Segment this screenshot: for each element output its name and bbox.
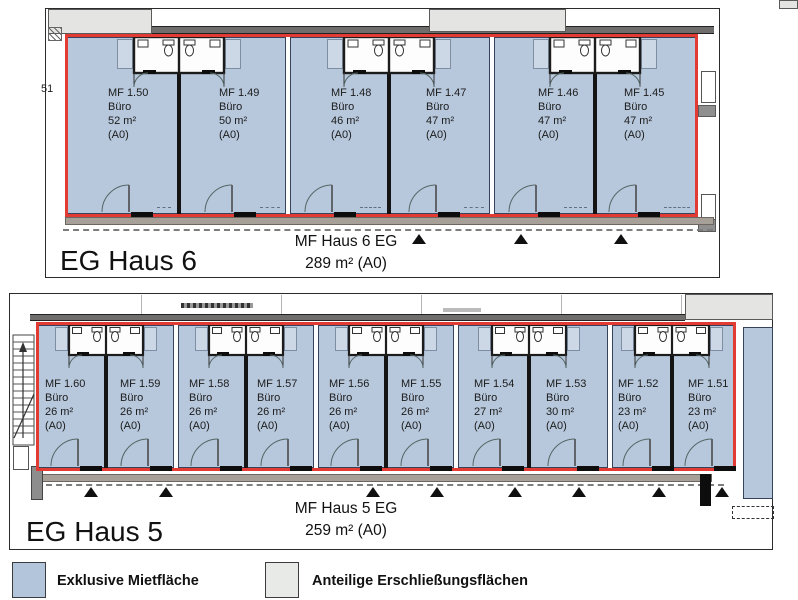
door-swing-icon <box>684 438 714 468</box>
unit-id: MF 1.46 <box>538 86 578 100</box>
unit-label: MF 1.55Büro26 m²(A0) <box>401 377 441 433</box>
unit-label: MF 1.45Büro47 m²(A0) <box>624 86 664 142</box>
door-swing-icon <box>204 184 234 214</box>
bathroom-pod-icon <box>196 324 296 370</box>
unit-area: 50 m² <box>219 114 259 128</box>
exclusive-area-swatch <box>12 562 46 598</box>
floor-dash-line <box>157 207 171 208</box>
door-swing-icon <box>120 438 150 468</box>
door-swing-icon <box>50 438 80 468</box>
unit-zone: (A0) <box>538 128 578 142</box>
staircase-icon <box>12 334 36 446</box>
dashed-outline <box>732 506 774 519</box>
double-wall <box>489 37 495 214</box>
walkway-strip <box>36 474 712 482</box>
bathroom-pod-icon <box>622 324 722 370</box>
door-swing-icon <box>408 184 438 214</box>
grid-line <box>561 295 562 314</box>
door-threshold <box>430 466 452 471</box>
summary-line2: 289 m² (A0) <box>226 253 466 275</box>
door-threshold <box>234 212 256 217</box>
door-threshold <box>502 466 524 471</box>
unit-area: 52 m² <box>108 114 148 128</box>
floor-dash-line <box>464 207 484 208</box>
unit-type: Büro <box>426 100 466 114</box>
roof-block <box>685 294 773 320</box>
unit-label: MF 1.59Büro26 m²(A0) <box>120 377 160 433</box>
haus5-title: EG Haus 5 <box>26 516 163 548</box>
door-swing-icon <box>400 438 430 468</box>
unit-label: MF 1.52Büro23 m²(A0) <box>618 377 658 433</box>
unit-area: 47 m² <box>624 114 664 128</box>
door-threshold <box>131 212 153 217</box>
door-threshold <box>538 212 560 217</box>
door-threshold <box>438 212 460 217</box>
door-swing-icon <box>260 438 290 468</box>
unit-label: MF 1.47Büro47 m²(A0) <box>426 86 466 142</box>
unit-type: Büro <box>331 100 371 114</box>
unit-zone: (A0) <box>331 128 371 142</box>
unit-area: 23 m² <box>688 405 728 419</box>
unit-label: MF 1.60Büro26 m²(A0) <box>45 377 85 433</box>
unit-id: MF 1.50 <box>108 86 148 100</box>
entrance-marker <box>514 234 528 244</box>
floor-dash-line <box>664 207 690 208</box>
haus6-plan-panel: MF Haus 6 EG 289 m² (A0) EG Haus 6 51 MF… <box>45 8 720 278</box>
unit-area: 26 m² <box>329 405 369 419</box>
door-threshold <box>652 466 674 471</box>
adjacent-room <box>743 327 773 499</box>
door-threshold <box>714 466 736 471</box>
unit-id: MF 1.49 <box>219 86 259 100</box>
door-threshold <box>638 212 660 217</box>
grid-line <box>281 295 282 314</box>
side-door <box>13 446 29 470</box>
unit-zone: (A0) <box>624 128 664 142</box>
unit-area: 26 m² <box>45 405 85 419</box>
door-swing-icon <box>190 438 220 468</box>
unit-zone: (A0) <box>189 419 229 433</box>
adjacent-unit-label: 51 <box>41 83 53 95</box>
door-swing-icon <box>622 438 652 468</box>
door-swing-icon <box>508 184 538 214</box>
unit-zone: (A0) <box>401 419 441 433</box>
bathroom-pod-icon <box>119 36 239 90</box>
unit-area: 26 m² <box>257 405 297 419</box>
roof-block <box>429 9 566 32</box>
bathroom-pod-icon <box>336 324 436 370</box>
unit-area: 47 m² <box>538 114 578 128</box>
unit-id: MF 1.47 <box>426 86 466 100</box>
grid-line <box>141 295 142 314</box>
roof-hatch-strip <box>443 308 481 312</box>
unit-type: Büro <box>257 391 297 405</box>
entrance-marker <box>508 487 522 497</box>
unit-id: MF 1.59 <box>120 377 160 391</box>
roof-block <box>48 9 152 34</box>
double-wall <box>453 325 459 468</box>
unit-zone: (A0) <box>120 419 160 433</box>
unit-area: 46 m² <box>331 114 371 128</box>
unit-zone: (A0) <box>45 419 85 433</box>
unit-id: MF 1.54 <box>474 377 514 391</box>
floor-dash-line <box>564 207 587 208</box>
unit-type: Büro <box>474 391 514 405</box>
entrance-marker <box>366 487 380 497</box>
floor-dash-line <box>260 207 280 208</box>
unit-id: MF 1.60 <box>45 377 85 391</box>
unit-zone: (A0) <box>474 419 514 433</box>
unit-area: 47 m² <box>426 114 466 128</box>
unit-zone: (A0) <box>329 419 369 433</box>
unit-label: MF 1.51Büro23 m²(A0) <box>688 377 728 433</box>
bathroom-pod-icon <box>479 324 579 370</box>
hatch-square <box>48 27 62 41</box>
double-wall <box>607 325 613 468</box>
unit-zone: (A0) <box>688 419 728 433</box>
unit-type: Büro <box>108 100 148 114</box>
exterior-niche <box>701 71 716 103</box>
wall-segment <box>700 474 711 506</box>
entrance-marker <box>715 487 729 497</box>
double-wall <box>285 37 291 214</box>
unit-area: 23 m² <box>618 405 658 419</box>
unit-zone: (A0) <box>546 419 586 433</box>
facade-band <box>30 314 685 321</box>
door-threshold <box>150 466 172 471</box>
roof-hatch-strip <box>181 303 253 308</box>
unit-zone: (A0) <box>257 419 297 433</box>
unit-area: 26 m² <box>120 405 160 419</box>
unit-area: 26 m² <box>189 405 229 419</box>
exterior-wall <box>31 466 43 500</box>
unit-type: Büro <box>189 391 229 405</box>
unit-label: MF 1.50Büro52 m²(A0) <box>108 86 148 142</box>
grid-line <box>681 295 682 314</box>
door-swing-icon <box>547 438 577 468</box>
walkway-strip <box>65 217 714 225</box>
unit-label: MF 1.46Büro47 m²(A0) <box>538 86 578 142</box>
exclusive-area-label: Exklusive Mietfläche <box>57 573 199 589</box>
bathroom-pod-icon <box>56 324 156 370</box>
unit-id: MF 1.51 <box>688 377 728 391</box>
entrance-marker <box>84 487 98 497</box>
unit-zone: (A0) <box>219 128 259 142</box>
floor-plan-document: MF Haus 6 EG 289 m² (A0) EG Haus 6 51 MF… <box>0 0 798 600</box>
unit-id: MF 1.56 <box>329 377 369 391</box>
unit-type: Büro <box>120 391 160 405</box>
unit-id: MF 1.53 <box>546 377 586 391</box>
unit-area: 26 m² <box>401 405 441 419</box>
double-wall <box>313 325 319 468</box>
unit-type: Büro <box>329 391 369 405</box>
haus6-total-label: MF Haus 6 EG 289 m² (A0) <box>226 231 466 275</box>
door-threshold <box>577 466 599 471</box>
unit-zone: (A0) <box>426 128 466 142</box>
circulation-area-label: Anteilige Erschließungsflächen <box>312 573 528 589</box>
unit-label: MF 1.49Büro50 m²(A0) <box>219 86 259 142</box>
unit-zone: (A0) <box>108 128 148 142</box>
haus5-plan-panel: MF Haus 5 EG 259 m² (A0) EG Haus 5 MF 1.… <box>9 293 773 550</box>
unit-label: MF 1.56Büro26 m²(A0) <box>329 377 369 433</box>
door-swing-icon <box>608 184 638 214</box>
unit-label: MF 1.58Büro26 m²(A0) <box>189 377 229 433</box>
unit-id: MF 1.48 <box>331 86 371 100</box>
unit-label: MF 1.57Büro26 m²(A0) <box>257 377 297 433</box>
door-threshold <box>334 212 356 217</box>
entrance-marker <box>572 487 586 497</box>
door-swing-icon <box>304 184 334 214</box>
site-dotted-line <box>36 484 724 486</box>
door-threshold <box>220 466 242 471</box>
double-wall <box>173 325 179 468</box>
unit-id: MF 1.45 <box>624 86 664 100</box>
unit-id: MF 1.58 <box>189 377 229 391</box>
grid-line <box>421 295 422 314</box>
top-right-gray-block <box>779 0 798 9</box>
unit-type: Büro <box>618 391 658 405</box>
door-threshold <box>80 466 102 471</box>
entrance-marker <box>614 234 628 244</box>
unit-id: MF 1.52 <box>618 377 658 391</box>
unit-type: Büro <box>219 100 259 114</box>
unit-label: MF 1.48Büro46 m²(A0) <box>331 86 371 142</box>
unit-type: Büro <box>401 391 441 405</box>
unit-id: MF 1.55 <box>401 377 441 391</box>
unit-type: Büro <box>546 391 586 405</box>
entrance-marker <box>652 487 666 497</box>
unit-id: MF 1.57 <box>257 377 297 391</box>
door-swing-icon <box>472 438 502 468</box>
unit-label: MF 1.54Büro27 m²(A0) <box>474 377 514 433</box>
door-swing-icon <box>101 184 131 214</box>
haus5-total-label: MF Haus 5 EG 259 m² (A0) <box>226 498 466 542</box>
entrance-marker <box>430 487 444 497</box>
unit-area: 27 m² <box>474 405 514 419</box>
unit-type: Büro <box>624 100 664 114</box>
unit-type: Büro <box>45 391 85 405</box>
door-swing-icon <box>330 438 360 468</box>
summary-line1: MF Haus 6 EG <box>226 231 466 253</box>
bathroom-pod-icon <box>329 36 449 90</box>
floor-dash-line <box>360 207 381 208</box>
unit-label: MF 1.53Büro30 m²(A0) <box>546 377 586 433</box>
unit-area: 30 m² <box>546 405 586 419</box>
summary-line1: MF Haus 5 EG <box>226 498 466 520</box>
unit-type: Büro <box>688 391 728 405</box>
door-threshold <box>360 466 382 471</box>
haus6-title: EG Haus 6 <box>60 245 197 277</box>
unit-zone: (A0) <box>618 419 658 433</box>
circulation-area-swatch <box>265 562 299 598</box>
summary-line2: 259 m² (A0) <box>226 520 466 542</box>
entrance-marker <box>159 487 173 497</box>
exterior-pier <box>698 105 716 117</box>
unit-type: Büro <box>538 100 578 114</box>
bathroom-pod-icon <box>535 36 655 90</box>
door-threshold <box>290 466 312 471</box>
